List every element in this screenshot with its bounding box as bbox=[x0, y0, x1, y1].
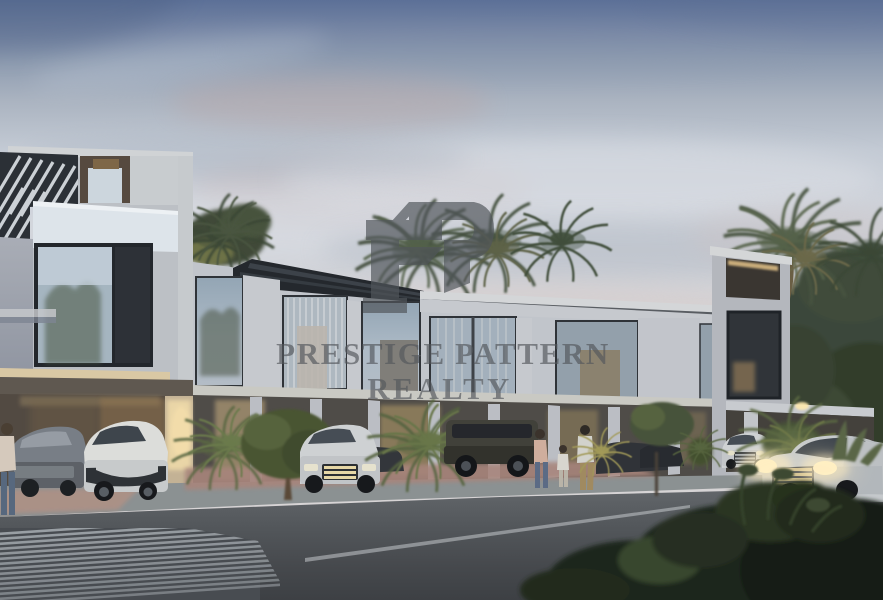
svg-text:REALTY: REALTY bbox=[367, 372, 512, 406]
svg-text:PRESTIGE PATTERN: PRESTIGE PATTERN bbox=[276, 336, 610, 371]
